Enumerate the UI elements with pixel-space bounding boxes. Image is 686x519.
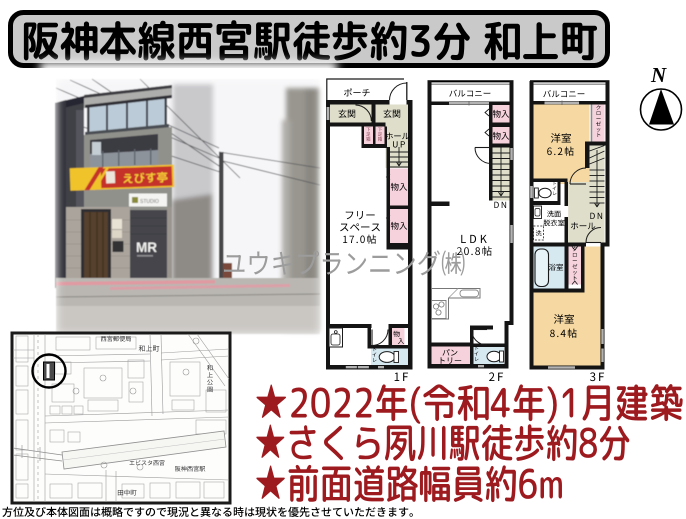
svg-text:STUDIO: STUDIO — [140, 199, 159, 205]
svg-text:MR: MR — [136, 240, 157, 255]
svg-text:N: N — [650, 63, 667, 87]
